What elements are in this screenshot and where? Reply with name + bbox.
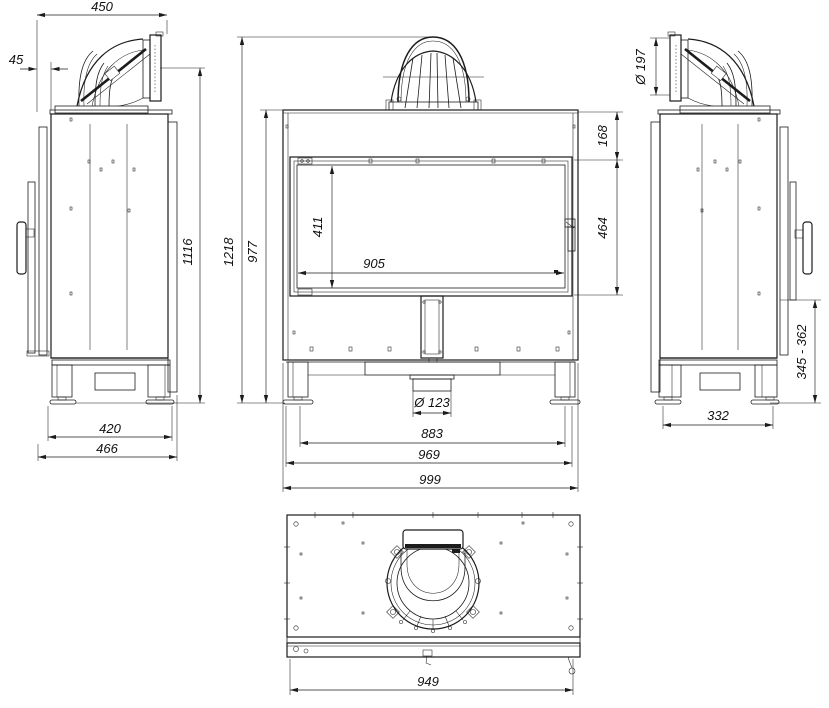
dim-label-feet-spacing-right: 332 xyxy=(707,408,729,423)
dim-label-glass-view-height: 411 xyxy=(310,217,325,238)
dim-label-flue-axis-height: 1116 xyxy=(180,238,195,266)
dim-feet-spacing-left: 420 xyxy=(48,406,172,441)
screw-holes xyxy=(70,118,135,295)
dim-label-total-height: 1218 xyxy=(221,237,236,267)
dim-label-door-glass-height: 464 xyxy=(595,217,610,239)
air-control xyxy=(421,296,443,362)
dim-label-inner-width: 969 xyxy=(418,447,440,462)
adjustable-foot xyxy=(751,400,779,404)
door-handle xyxy=(803,222,812,274)
dim-label-glass-view-width: 905 xyxy=(363,256,385,271)
right-side-view: Ø 197 345 - 362 332 xyxy=(633,32,821,429)
dim-label-feet-spacing-front: 883 xyxy=(421,426,443,441)
adjustable-foot xyxy=(655,400,681,404)
fireplace-insert-drawing: 450 45 1116 420 466 xyxy=(0,0,829,708)
dim-flue-front-offset: 45 xyxy=(9,52,68,110)
air-inlet-duct xyxy=(413,379,451,391)
dim-label-total-depth: 466 xyxy=(96,441,118,456)
dim-glass-view-height: 411 xyxy=(310,166,332,288)
dim-flue-axis-height: 1116 xyxy=(76,68,205,403)
dim-label-feet-spacing-left: 420 xyxy=(99,421,121,436)
top-view: 949 xyxy=(284,512,583,695)
front-panel-strip xyxy=(287,637,580,674)
door-handle xyxy=(17,222,26,274)
dim-label-front-panel-width: 949 xyxy=(417,674,439,689)
dim-flue-diameter: Ø 197 xyxy=(633,38,670,95)
door-glass xyxy=(297,165,565,288)
technical-drawing-page: 450 45 1116 420 466 xyxy=(0,0,829,708)
door-latch xyxy=(565,219,575,251)
collar-bolts xyxy=(385,546,480,619)
flue-dome xyxy=(383,37,484,110)
stove-body-side xyxy=(17,110,177,404)
dim-feet-spacing-right: 332 xyxy=(663,406,773,429)
dim-air-inlet-diameter: Ø 123 xyxy=(413,391,451,417)
stove-body-side xyxy=(651,110,812,404)
dim-label-flue-diameter: Ø 197 xyxy=(633,49,648,86)
dim-label-plinth-height-range: 345 - 362 xyxy=(794,324,809,380)
adjustable-foot xyxy=(146,400,174,404)
front-view: 1218 977 168 464 411 905 xyxy=(221,37,623,492)
dim-top-to-glass: 168 xyxy=(578,112,623,160)
dim-label-flue-front-offset: 45 xyxy=(9,52,24,67)
adjustable-foot xyxy=(50,400,76,404)
screw-holes xyxy=(293,331,570,351)
flue-collar xyxy=(385,530,480,633)
dim-glass-view-width: 905 xyxy=(298,256,564,273)
dim-body-height: 977 xyxy=(245,110,283,403)
screw-holes xyxy=(697,118,760,295)
stove-body-front xyxy=(283,110,580,404)
dim-label-body-height: 977 xyxy=(245,240,260,262)
dim-door-glass-height: 464 xyxy=(574,160,623,295)
adjustable-foot xyxy=(283,400,313,404)
dim-front-panel-width: 949 xyxy=(290,659,573,695)
left-side-view: 450 45 1116 420 466 xyxy=(9,0,205,461)
dim-label-depth-with-flue: 450 xyxy=(91,0,113,14)
dim-feet-spacing-front: 883 xyxy=(300,406,565,447)
flue-elbow xyxy=(668,32,770,113)
dim-label-total-width: 999 xyxy=(419,472,441,487)
dim-label-air-inlet-diameter: Ø 123 xyxy=(413,395,450,410)
collar-studs xyxy=(399,611,466,633)
adjustable-foot xyxy=(550,400,580,404)
flue-elbow xyxy=(55,32,163,113)
edge-ticks xyxy=(284,512,583,619)
dim-plinth-height-range: 345 - 362 xyxy=(770,300,821,403)
dim-label-top-to-glass: 168 xyxy=(595,124,610,146)
